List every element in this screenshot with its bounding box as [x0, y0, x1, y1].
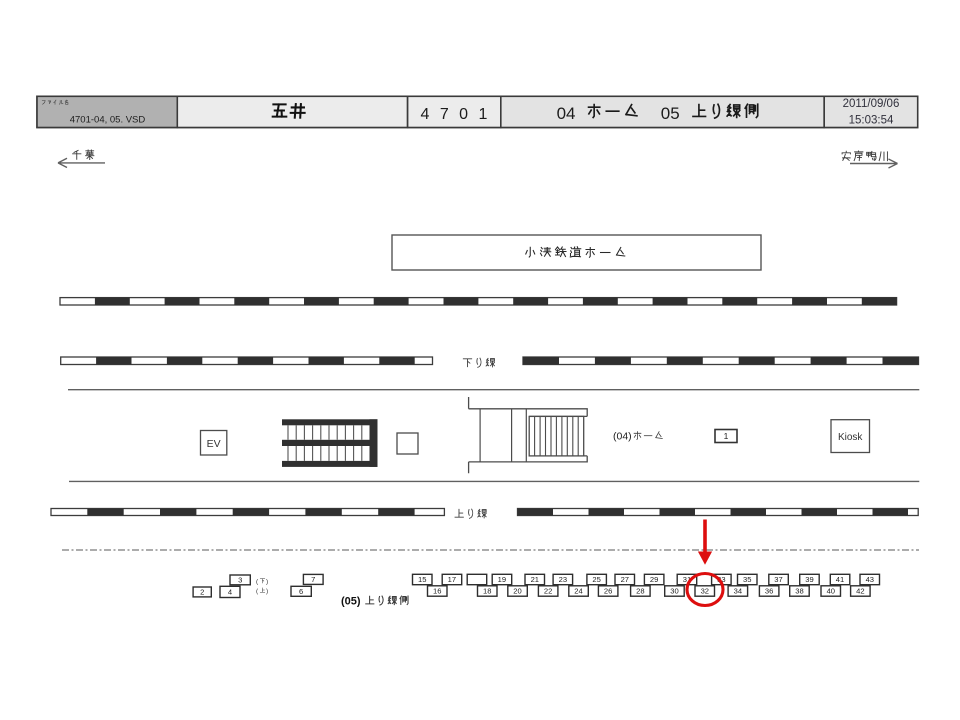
svg-text:19: 19	[498, 575, 506, 584]
svg-text:1: 1	[478, 106, 487, 123]
svg-text:23: 23	[559, 575, 567, 584]
svg-text:05: 05	[661, 104, 680, 123]
svg-text:Kiosk: Kiosk	[838, 432, 863, 443]
svg-text:43: 43	[866, 575, 874, 584]
svg-text:20: 20	[513, 587, 521, 596]
svg-text:4: 4	[421, 106, 430, 123]
svg-text:): )	[266, 579, 268, 586]
svg-text:38: 38	[795, 587, 803, 596]
svg-text:22: 22	[544, 587, 552, 596]
svg-text:15:03:54: 15:03:54	[849, 115, 894, 127]
svg-text:(: (	[256, 588, 259, 595]
svg-text:27: 27	[621, 575, 629, 584]
svg-text:0: 0	[459, 106, 468, 123]
svg-text:30: 30	[670, 587, 678, 596]
svg-text:2: 2	[200, 588, 204, 597]
svg-text:(04): (04)	[613, 431, 632, 443]
svg-text:): )	[266, 588, 268, 595]
svg-text:40: 40	[827, 587, 835, 596]
svg-text:4701-04, 05. VSD: 4701-04, 05. VSD	[70, 115, 146, 126]
svg-text:7: 7	[311, 575, 315, 584]
svg-text:26: 26	[604, 587, 612, 596]
svg-text:41: 41	[836, 575, 844, 584]
svg-text:7: 7	[440, 106, 449, 123]
svg-text:42: 42	[856, 587, 864, 596]
svg-text:EV: EV	[207, 438, 221, 450]
svg-text:32: 32	[701, 587, 709, 596]
svg-text:4: 4	[228, 588, 232, 597]
svg-text:37: 37	[774, 575, 782, 584]
svg-text:1: 1	[724, 431, 729, 441]
svg-text:29: 29	[650, 575, 658, 584]
svg-text:(05): (05)	[341, 596, 361, 608]
svg-text:35: 35	[743, 575, 751, 584]
svg-text:16: 16	[433, 587, 441, 596]
svg-text:17: 17	[448, 575, 456, 584]
svg-text:15: 15	[418, 575, 426, 584]
svg-text:2011/09/06: 2011/09/06	[843, 98, 900, 110]
svg-text:36: 36	[765, 587, 773, 596]
svg-text:34: 34	[734, 587, 742, 596]
svg-text:18: 18	[483, 587, 491, 596]
svg-text:3: 3	[238, 576, 242, 585]
svg-text:24: 24	[574, 587, 582, 596]
svg-text:21: 21	[531, 575, 539, 584]
svg-text:28: 28	[636, 587, 644, 596]
svg-text:04: 04	[557, 104, 576, 123]
svg-text:(: (	[256, 579, 259, 586]
svg-text:6: 6	[299, 587, 303, 596]
svg-text:39: 39	[805, 575, 813, 584]
svg-text:25: 25	[592, 575, 600, 584]
